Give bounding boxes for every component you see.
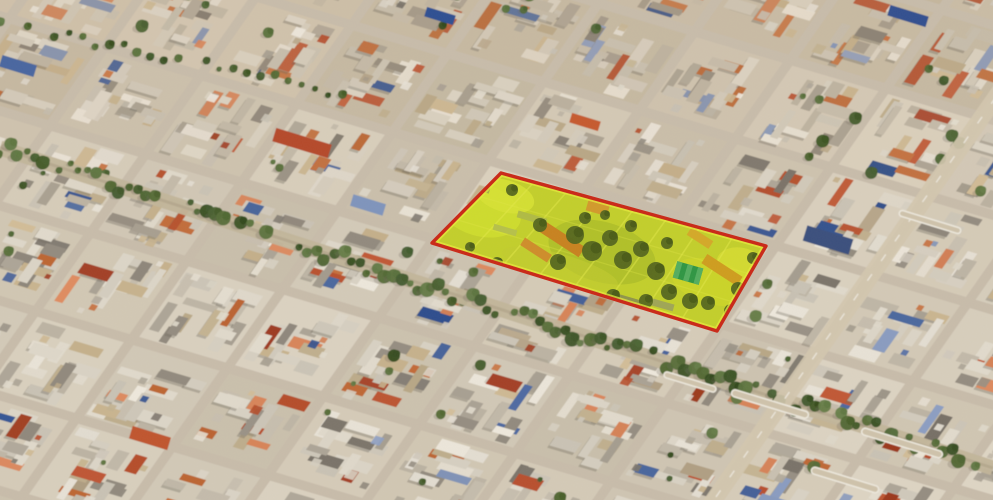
aerial-imagery bbox=[0, 0, 993, 500]
film-grain-overlay bbox=[0, 0, 993, 500]
satellite-map-view[interactable] bbox=[0, 0, 993, 500]
